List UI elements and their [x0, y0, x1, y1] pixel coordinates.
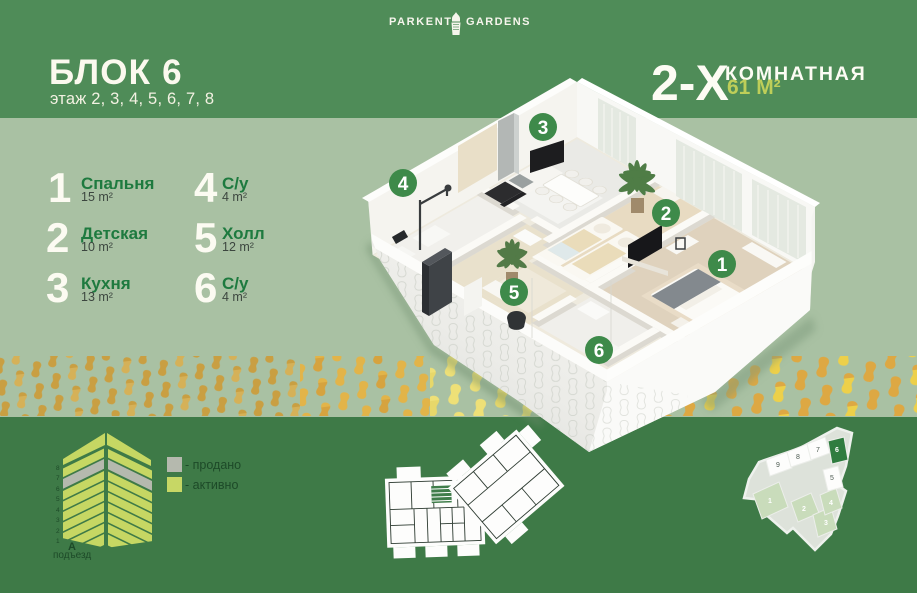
svg-text:4: 4	[829, 500, 833, 507]
svg-text:9: 9	[776, 462, 780, 469]
svg-text:2: 2	[802, 506, 806, 513]
svg-text:6: 6	[835, 447, 839, 454]
svg-text:3: 3	[538, 118, 549, 139]
svg-text:8: 8	[56, 465, 60, 472]
svg-text:2: 2	[56, 528, 60, 535]
svg-text:8: 8	[796, 454, 800, 461]
svg-text:4: 4	[56, 507, 60, 514]
svg-text:2: 2	[661, 204, 672, 225]
svg-text:4: 4	[398, 174, 409, 195]
svg-text:3: 3	[56, 517, 60, 524]
svg-text:1: 1	[56, 538, 60, 545]
svg-text:6: 6	[594, 341, 605, 362]
svg-text:1: 1	[717, 255, 728, 276]
svg-text:1: 1	[768, 498, 772, 505]
svg-text:5: 5	[830, 475, 834, 482]
svg-text:3: 3	[824, 520, 828, 527]
svg-text:5: 5	[56, 496, 60, 503]
svg-text:6: 6	[56, 486, 60, 493]
svg-text:7: 7	[816, 447, 820, 454]
svg-text:5: 5	[509, 283, 520, 304]
svg-text:7: 7	[56, 475, 60, 482]
